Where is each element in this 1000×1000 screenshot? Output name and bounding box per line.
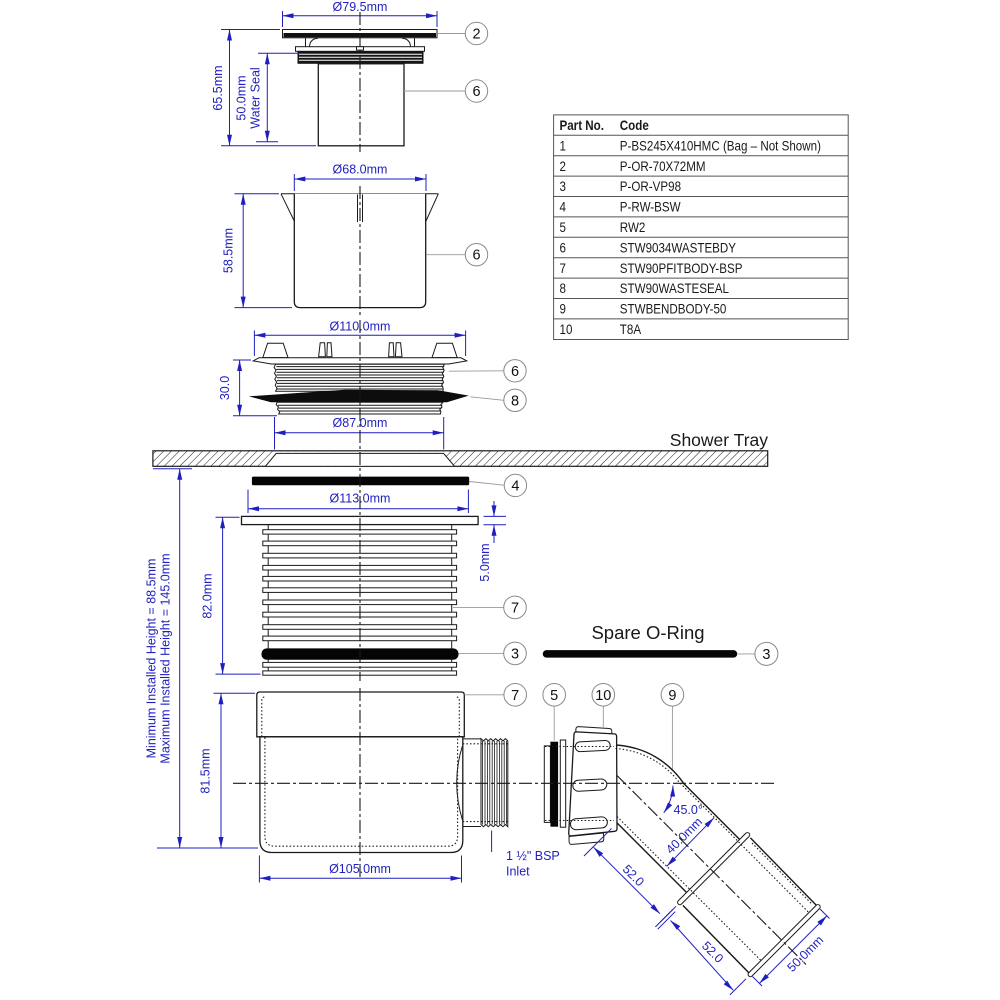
svg-text:1 ½" BSP: 1 ½" BSP <box>506 849 560 863</box>
svg-text:50.0mm: 50.0mm <box>235 75 249 120</box>
svg-text:6: 6 <box>511 364 519 380</box>
svg-text:2: 2 <box>560 159 566 174</box>
svg-text:STW9034WASTEBDY: STW9034WASTEBDY <box>620 241 737 256</box>
svg-text:1: 1 <box>560 139 566 154</box>
svg-text:6: 6 <box>560 241 566 256</box>
svg-text:4: 4 <box>511 478 519 494</box>
svg-text:10: 10 <box>595 688 611 704</box>
svg-text:2: 2 <box>472 27 480 43</box>
svg-text:45.0°: 45.0° <box>674 803 703 817</box>
svg-text:Ø68.0mm: Ø68.0mm <box>333 163 388 177</box>
svg-text:P-OR-70X72MM: P-OR-70X72MM <box>620 159 706 174</box>
svg-text:STWBENDBODY-50: STWBENDBODY-50 <box>620 302 727 317</box>
svg-text:Spare O-Ring: Spare O-Ring <box>591 622 704 643</box>
svg-text:P-RW-BSW: P-RW-BSW <box>620 200 681 215</box>
svg-text:8: 8 <box>560 281 566 296</box>
svg-text:STW90WASTESEAL: STW90WASTESEAL <box>620 281 729 296</box>
svg-text:8: 8 <box>511 393 519 409</box>
svg-text:6: 6 <box>472 248 480 264</box>
svg-text:7: 7 <box>511 688 519 704</box>
svg-text:Maximum Installed Height = 145: Maximum Installed Height = 145.0mm <box>159 553 173 763</box>
svg-text:RW2: RW2 <box>620 220 646 235</box>
svg-text:5.0mm: 5.0mm <box>478 543 492 581</box>
svg-text:Water Seal: Water Seal <box>249 67 263 128</box>
svg-text:Code: Code <box>620 118 649 133</box>
svg-text:Part No.: Part No. <box>560 118 604 133</box>
svg-text:3: 3 <box>511 646 519 662</box>
svg-text:5: 5 <box>550 688 558 704</box>
svg-text:P-BS245X410HMC (Bag – Not Show: P-BS245X410HMC (Bag – Not Shown) <box>620 139 821 154</box>
svg-text:3: 3 <box>762 647 770 663</box>
svg-text:30.0: 30.0 <box>218 376 232 400</box>
svg-text:STW90PFITBODY-BSP: STW90PFITBODY-BSP <box>620 261 743 276</box>
svg-text:Shower Tray: Shower Tray <box>670 430 768 450</box>
svg-text:9: 9 <box>560 302 566 317</box>
svg-text:3: 3 <box>560 179 566 194</box>
svg-text:P-OR-VP98: P-OR-VP98 <box>620 179 681 194</box>
svg-text:6: 6 <box>472 84 480 100</box>
svg-text:65.5mm: 65.5mm <box>211 65 225 110</box>
svg-text:5: 5 <box>560 220 566 235</box>
svg-text:7: 7 <box>560 261 566 276</box>
svg-text:7: 7 <box>511 600 519 616</box>
svg-text:Ø79.5mm: Ø79.5mm <box>333 0 388 14</box>
svg-text:58.5mm: 58.5mm <box>222 228 236 273</box>
svg-text:9: 9 <box>668 688 676 704</box>
svg-text:Inlet: Inlet <box>506 865 530 879</box>
svg-text:4: 4 <box>560 200 566 215</box>
svg-text:82.0mm: 82.0mm <box>201 573 215 618</box>
svg-text:Minimum Installed Height = 88.: Minimum Installed Height = 88.5mm <box>145 559 159 759</box>
svg-text:81.5mm: 81.5mm <box>199 748 213 793</box>
svg-text:10: 10 <box>560 322 573 337</box>
svg-text:T8A: T8A <box>620 322 642 337</box>
